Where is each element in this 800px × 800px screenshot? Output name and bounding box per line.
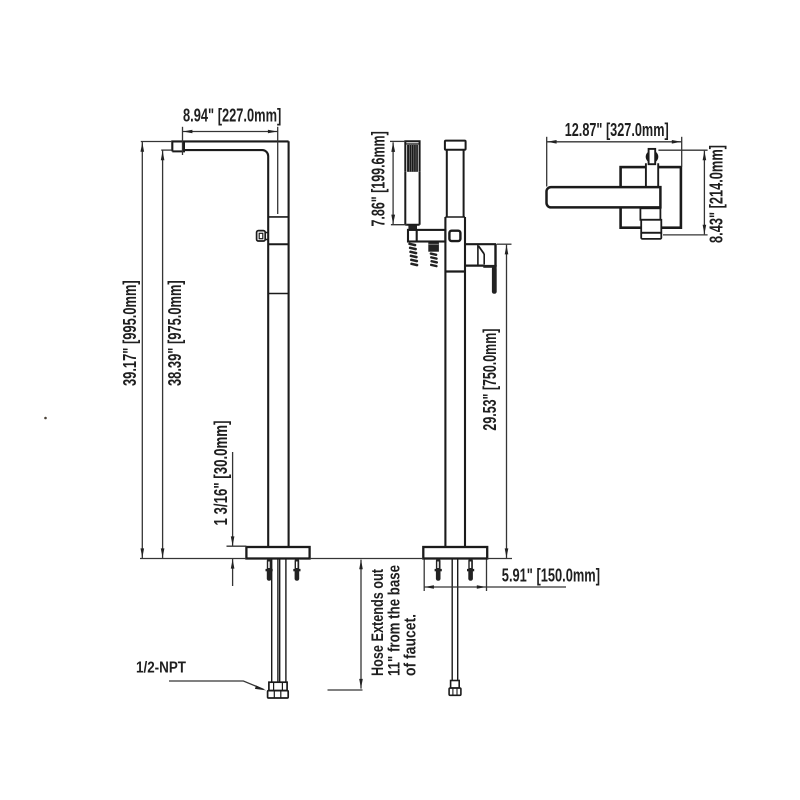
svg-text:of faucet.: of faucet. xyxy=(401,614,420,676)
svg-text:39.17" [995.0mm]: 39.17" [995.0mm] xyxy=(120,280,140,386)
svg-text:8.94" [227.0mm]: 8.94" [227.0mm] xyxy=(183,105,281,125)
svg-text:8.43" [214.0mm]: 8.43" [214.0mm] xyxy=(706,145,726,243)
svg-text:7.86" [199.6mm]: 7.86" [199.6mm] xyxy=(368,131,388,226)
svg-text:1/2-NPT: 1/2-NPT xyxy=(136,660,186,677)
svg-text:5.91" [150.0mm]: 5.91" [150.0mm] xyxy=(502,566,600,586)
svg-text:1 3/16" [30.0mm]: 1 3/16" [30.0mm] xyxy=(211,421,231,526)
svg-text:12.87" [327.0mm]: 12.87" [327.0mm] xyxy=(565,120,669,140)
svg-text:38.39" [975.0mm]: 38.39" [975.0mm] xyxy=(165,280,185,386)
svg-text:29.53" [750.0mm]: 29.53" [750.0mm] xyxy=(480,329,500,431)
